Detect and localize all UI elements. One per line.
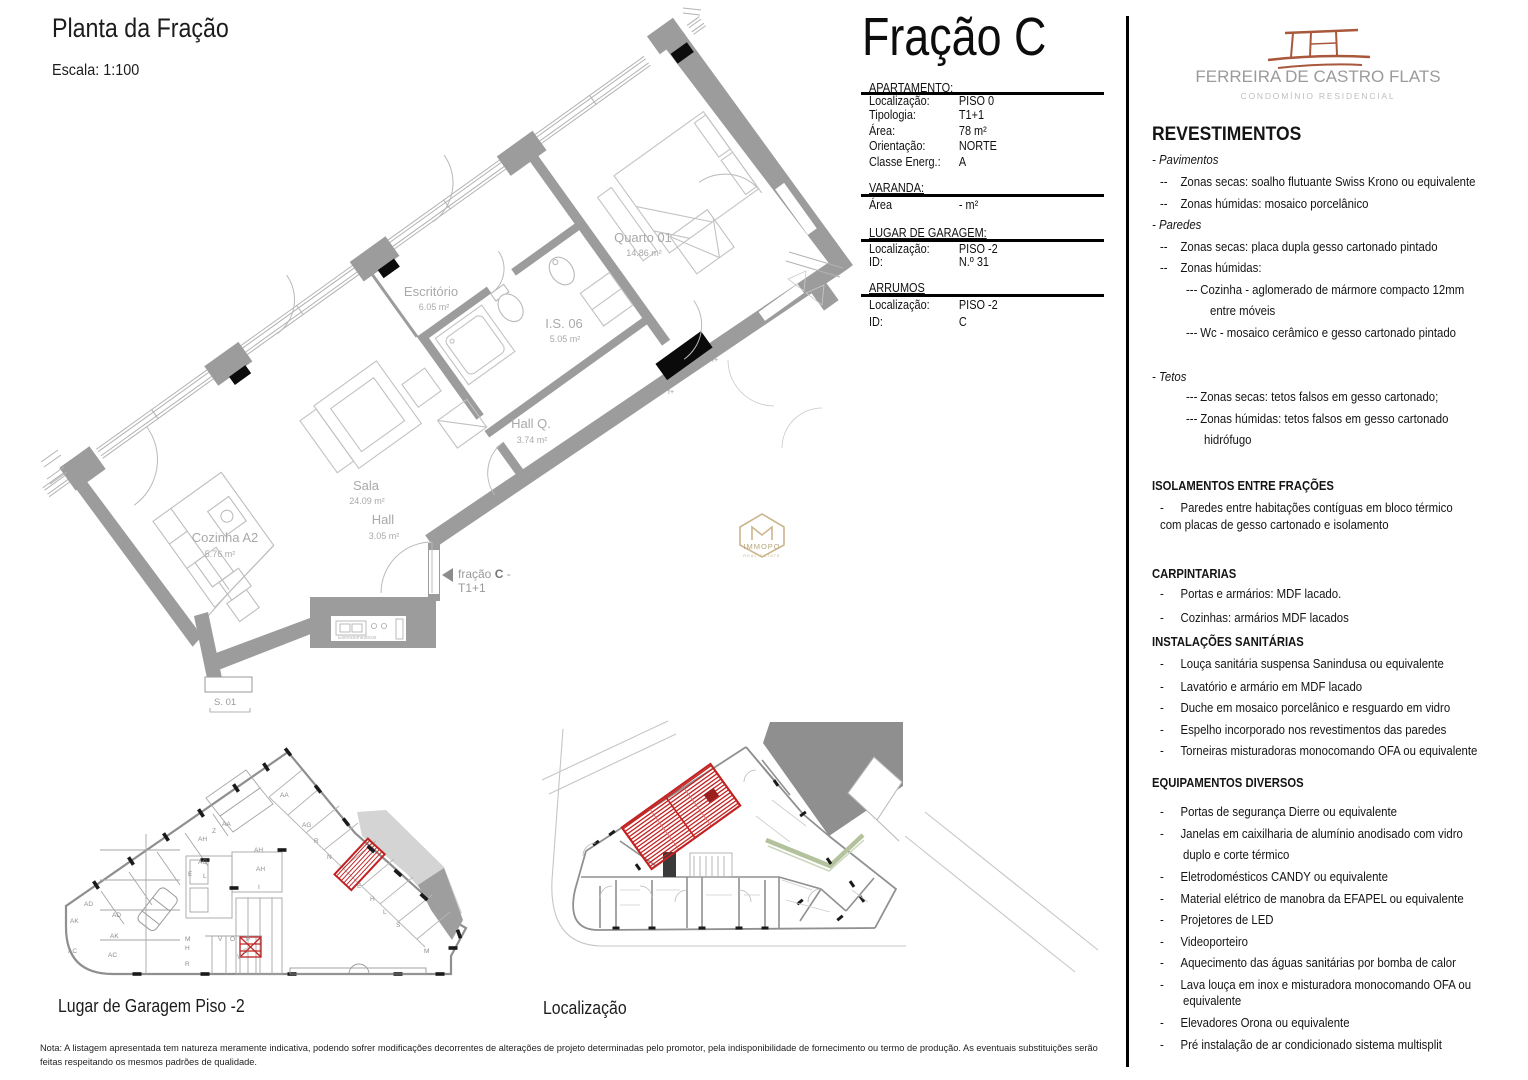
svg-text:V: V (218, 936, 223, 943)
svg-text:14.86 m²: 14.86 m² (626, 248, 662, 258)
svg-text:Cozinha A2: Cozinha A2 (192, 530, 259, 545)
svg-text:E: E (188, 871, 193, 878)
svg-text:H: H (185, 945, 190, 952)
svg-text:Sala: Sala (353, 478, 380, 493)
svg-text:5.05 m²: 5.05 m² (550, 334, 581, 344)
svg-text:f+: f+ (668, 389, 674, 396)
svg-text:T1+1: T1+1 (458, 581, 486, 595)
svg-text:AC: AC (108, 952, 117, 959)
svg-text:L: L (383, 909, 387, 916)
svg-text:AC: AC (68, 948, 77, 955)
svg-text:R: R (185, 961, 190, 968)
svg-text:O: O (230, 936, 235, 943)
svg-text:N: N (327, 854, 332, 861)
svg-text:Eletrodomésticos: Eletrodomésticos (338, 635, 377, 641)
svg-text:24.09 m²: 24.09 m² (349, 496, 385, 506)
svg-text:AA: AA (222, 821, 231, 828)
svg-text:O: O (243, 948, 248, 955)
svg-text:L: L (203, 873, 207, 880)
svg-text:M: M (424, 948, 429, 955)
svg-text:AG: AG (198, 859, 207, 866)
svg-text:R: R (314, 838, 319, 845)
svg-text:AG: AG (302, 822, 311, 829)
svg-text:AD: AD (112, 912, 121, 919)
svg-text:Escritório: Escritório (404, 284, 458, 299)
svg-text:M: M (185, 936, 190, 943)
svg-text:AK: AK (110, 933, 119, 940)
svg-text:Hall: Hall (372, 512, 395, 527)
svg-text:I: I (258, 884, 260, 891)
svg-text:5.76 m²: 5.76 m² (205, 549, 236, 559)
svg-text:I.S. 06: I.S. 06 (545, 316, 583, 331)
svg-text:S: S (396, 922, 401, 929)
svg-text:Hall Q.: Hall Q. (511, 416, 551, 431)
svg-text:AK: AK (70, 918, 79, 925)
svg-text:Quarto 01: Quarto 01 (614, 230, 672, 245)
svg-text:V: V (237, 954, 242, 961)
svg-text:IMMOPO: IMMOPO (743, 542, 780, 551)
svg-text:3.05 m²: 3.05 m² (369, 531, 400, 541)
svg-text:AA: AA (280, 792, 289, 799)
svg-text:AH: AH (198, 836, 207, 843)
svg-text:fração C -: fração C - (458, 567, 511, 581)
svg-text:AH: AH (256, 866, 265, 873)
svg-text:P: P (246, 936, 250, 943)
svg-text:3.74 m²: 3.74 m² (517, 435, 548, 445)
svg-text:E: E (357, 883, 362, 890)
svg-text:Z: Z (212, 828, 216, 835)
svg-text:REAL ESTATE: REAL ESTATE (743, 553, 780, 558)
svg-text:S. 01: S. 01 (214, 697, 236, 708)
svg-text:6.05 m²: 6.05 m² (419, 302, 450, 312)
svg-text:f+: f+ (712, 357, 718, 364)
svg-text:AH: AH (254, 847, 263, 854)
svg-text:AD: AD (84, 901, 93, 908)
svg-text:H: H (370, 896, 375, 903)
